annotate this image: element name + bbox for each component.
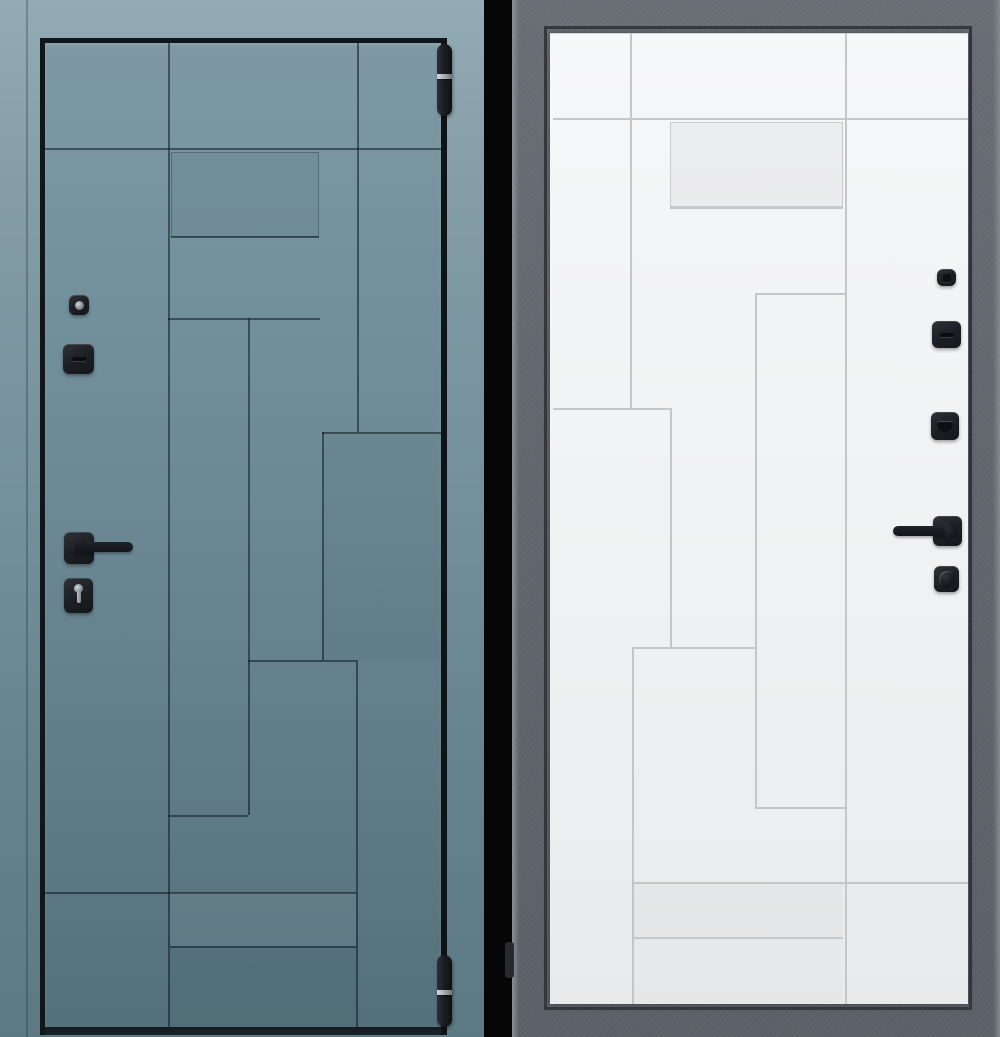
frame-hinge-cover (505, 942, 514, 978)
lock-slot-cover (932, 321, 961, 348)
door-product-image (0, 0, 1000, 1037)
dot-glyph (943, 274, 951, 282)
knob-glyph (939, 571, 955, 587)
deadbolt-thumbturn (931, 412, 959, 440)
cylinder-thumb-knob (934, 566, 959, 592)
privacy-latch-knob (937, 269, 956, 286)
interior-door-view (0, 0, 1000, 1037)
door-handle-lever (893, 526, 945, 536)
interior-hardware (0, 0, 1000, 1037)
slot-glyph (940, 333, 954, 337)
thumbturn-glyph (937, 421, 953, 432)
